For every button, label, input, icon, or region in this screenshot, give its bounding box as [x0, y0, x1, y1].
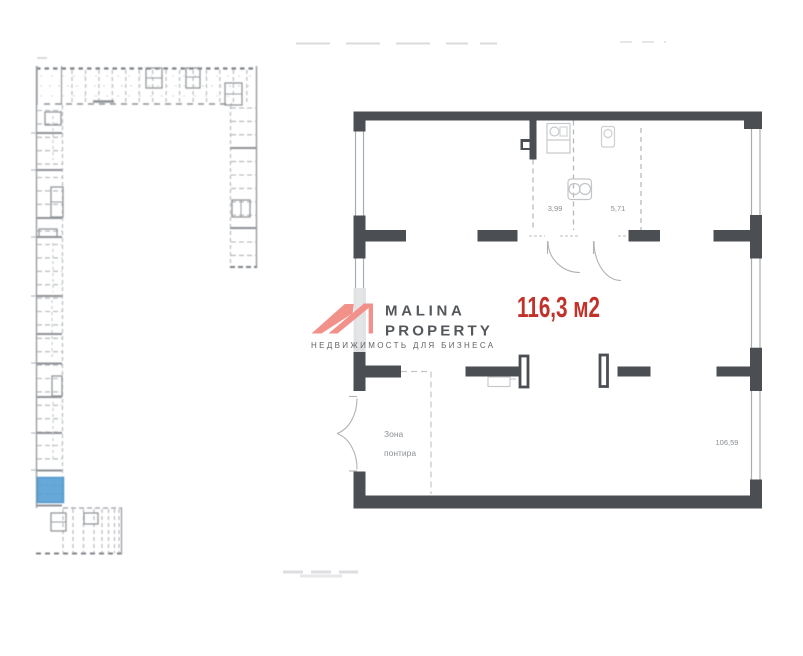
svg-text:НЕДВИЖИМОСТЬ ДЛЯ БИЗНЕСА: НЕДВИЖИМОСТЬ ДЛЯ БИЗНЕСА — [311, 341, 495, 350]
svg-text:MALINA: MALINA — [385, 303, 466, 320]
svg-text:106,59: 106,59 — [716, 438, 739, 447]
svg-text:Зона: Зона — [384, 429, 404, 439]
svg-text:PROPERTY: PROPERTY — [385, 323, 493, 340]
svg-text:3,99: 3,99 — [548, 204, 563, 213]
svg-text:5,71: 5,71 — [611, 204, 626, 213]
svg-text:понтира: понтира — [384, 448, 416, 458]
svg-text:116,3 м2: 116,3 м2 — [517, 292, 600, 324]
